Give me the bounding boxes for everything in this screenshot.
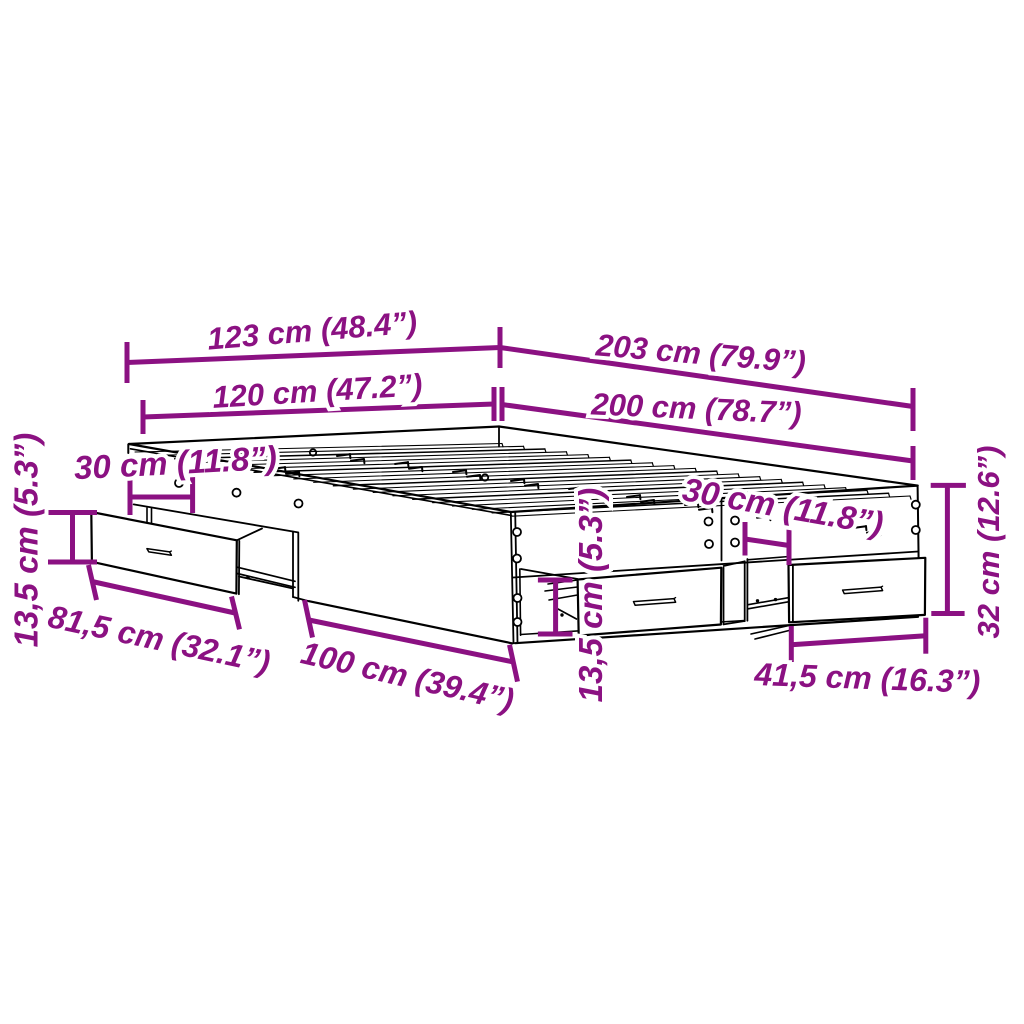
svg-text:13,5 cm (5.3”): 13,5 cm (5.3”) xyxy=(572,488,609,703)
svg-text:13,5 cm (5.3”): 13,5 cm (5.3”) xyxy=(8,433,45,648)
svg-text:32 cm (12.6”): 32 cm (12.6”) xyxy=(971,446,1006,639)
